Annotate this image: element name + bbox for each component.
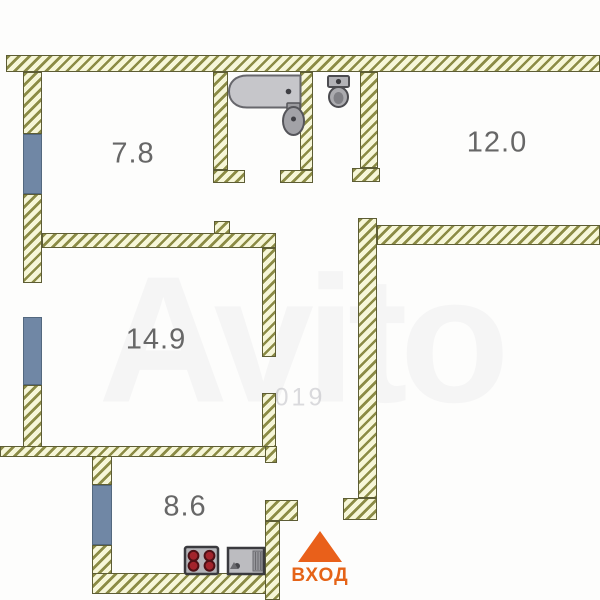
wall-segment xyxy=(262,393,276,447)
wall-segment xyxy=(358,218,377,498)
wall-segment xyxy=(213,72,228,170)
room-label-7-8: 7.8 xyxy=(111,138,154,171)
wall-segment xyxy=(42,233,276,248)
wall-segment xyxy=(23,72,42,134)
kitchen-sink-icon xyxy=(228,548,264,574)
wall-segment xyxy=(213,170,245,183)
entrance-label: ВХОД xyxy=(291,565,348,587)
wall-segment xyxy=(92,573,278,594)
entrance-arrow-icon xyxy=(298,531,342,562)
bathtub-icon xyxy=(229,76,301,108)
wall-segment xyxy=(300,72,313,170)
wall-segment xyxy=(92,456,112,485)
wall-segment xyxy=(6,55,600,72)
window-segment xyxy=(92,485,112,545)
room-label-12-0: 12.0 xyxy=(467,127,527,160)
watermark-digits: 019 xyxy=(275,384,326,413)
window-segment xyxy=(23,317,42,385)
stove-icon xyxy=(185,547,218,574)
wall-segment xyxy=(265,500,298,521)
wall-segment xyxy=(360,72,378,168)
wall-segment xyxy=(280,170,313,183)
room-label-8-6: 8.6 xyxy=(163,491,206,524)
room-label-14-9: 14.9 xyxy=(126,324,186,357)
wall-segment xyxy=(262,248,276,357)
wall-segment xyxy=(0,446,277,457)
wall-segment xyxy=(377,225,600,245)
floor-plan: Avito 019 7.8 12.0 14.9 8.6 xyxy=(0,0,600,600)
wall-segment xyxy=(265,446,277,463)
window-segment xyxy=(23,134,42,194)
wall-segment xyxy=(265,521,280,600)
wall-segment xyxy=(23,194,42,283)
wall-segment xyxy=(352,168,380,182)
toilet-icon xyxy=(328,76,349,107)
wall-segment xyxy=(214,221,230,234)
wall-segment xyxy=(343,498,377,520)
